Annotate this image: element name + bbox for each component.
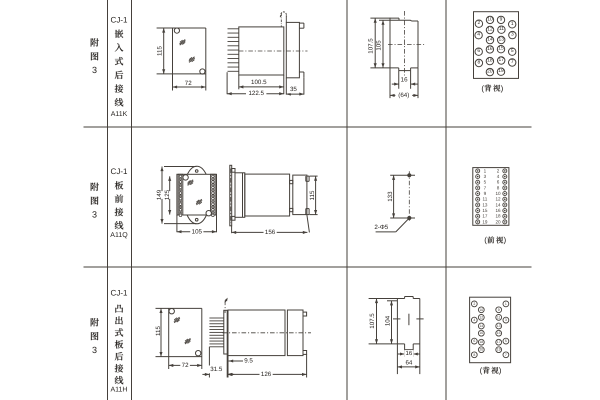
svg-text:1: 1	[505, 302, 507, 306]
svg-text:20: 20	[487, 69, 493, 75]
svg-text:15: 15	[498, 46, 504, 52]
svg-text:1: 1	[484, 168, 487, 173]
svg-text:18: 18	[487, 58, 493, 64]
svg-text:156: 156	[265, 229, 276, 236]
svg-text:16: 16	[401, 77, 408, 84]
svg-text:19: 19	[498, 68, 504, 74]
svg-text:5: 5	[484, 180, 487, 185]
svg-text:8: 8	[478, 60, 481, 66]
svg-text:9: 9	[498, 308, 500, 312]
svg-text:(64): (64)	[398, 92, 409, 99]
svg-text:2: 2	[478, 20, 481, 26]
svg-text:15: 15	[497, 331, 501, 335]
svg-text:8: 8	[473, 353, 475, 357]
svg-text:6: 6	[477, 48, 480, 54]
svg-text:12: 12	[487, 27, 493, 33]
svg-text:7: 7	[511, 59, 514, 65]
svg-text:72: 72	[182, 362, 189, 369]
svg-text:1: 1	[511, 21, 514, 27]
svg-text:11: 11	[497, 315, 501, 319]
svg-text:31.5: 31.5	[210, 366, 223, 373]
svg-text:104: 104	[384, 315, 391, 326]
svg-text:16: 16	[495, 208, 501, 213]
svg-text:20: 20	[479, 348, 483, 352]
svg-text:16: 16	[479, 331, 483, 335]
svg-text:19: 19	[482, 219, 488, 224]
svg-text:35: 35	[290, 86, 297, 93]
svg-text:3: 3	[92, 65, 97, 75]
svg-text:115: 115	[155, 326, 162, 336]
svg-text:72: 72	[185, 80, 192, 87]
svg-text:100.5: 100.5	[251, 79, 267, 86]
svg-text:): )	[499, 366, 502, 375]
svg-text:18: 18	[495, 214, 501, 219]
svg-text:17: 17	[482, 214, 488, 219]
svg-text:2: 2	[497, 168, 500, 173]
svg-text:105: 105	[376, 40, 383, 51]
svg-text:133: 133	[387, 191, 394, 202]
svg-text:3: 3	[511, 32, 514, 38]
svg-text:10: 10	[487, 16, 493, 22]
svg-text:5: 5	[511, 48, 514, 54]
svg-text:11: 11	[499, 26, 504, 32]
svg-text:4: 4	[473, 318, 475, 322]
svg-text:): )	[501, 84, 504, 93]
svg-text:CJ-1: CJ-1	[111, 16, 128, 25]
svg-text:19: 19	[497, 348, 501, 352]
svg-text:9: 9	[500, 16, 503, 22]
svg-text:CJ-1: CJ-1	[111, 167, 128, 176]
svg-text:115: 115	[157, 46, 164, 56]
svg-text:13: 13	[482, 202, 488, 207]
svg-text:107.5: 107.5	[369, 313, 376, 329]
svg-text:): )	[503, 236, 506, 245]
svg-text:115: 115	[309, 190, 316, 200]
svg-text:16: 16	[406, 350, 413, 357]
svg-text:7: 7	[505, 353, 507, 357]
svg-text:A11Q: A11Q	[110, 232, 128, 239]
svg-text:(: (	[484, 236, 487, 245]
svg-text:9.5: 9.5	[244, 358, 253, 365]
svg-text:6: 6	[473, 339, 475, 343]
svg-text:7: 7	[484, 185, 487, 190]
svg-text:2: 2	[473, 302, 475, 306]
svg-text:3: 3	[484, 174, 487, 179]
svg-text:105: 105	[192, 228, 203, 235]
svg-text:11: 11	[483, 197, 488, 202]
svg-text:10: 10	[479, 308, 483, 312]
svg-text:12: 12	[495, 197, 501, 202]
svg-text:17: 17	[498, 57, 504, 63]
svg-text:107.5: 107.5	[367, 38, 374, 54]
svg-text:5: 5	[505, 339, 507, 343]
svg-text:13: 13	[497, 324, 501, 328]
svg-text:13: 13	[498, 37, 504, 43]
svg-text:4: 4	[497, 174, 500, 179]
svg-text:17: 17	[497, 340, 501, 344]
svg-text:2-Φ5: 2-Φ5	[374, 224, 388, 231]
svg-text:16: 16	[487, 46, 493, 52]
svg-text:122.5: 122.5	[248, 90, 264, 97]
svg-text:A11H: A11H	[111, 386, 128, 393]
svg-text:6: 6	[497, 180, 500, 185]
svg-text:3: 3	[92, 345, 97, 355]
svg-text:(: (	[481, 84, 484, 93]
svg-text:126: 126	[261, 371, 272, 378]
svg-text:15: 15	[482, 208, 488, 213]
svg-text:(: (	[480, 366, 483, 375]
svg-text:18: 18	[479, 340, 483, 344]
svg-text:4: 4	[477, 32, 480, 38]
svg-text:CJ-1: CJ-1	[111, 288, 128, 297]
svg-text:14: 14	[479, 324, 483, 328]
svg-text:3: 3	[505, 318, 507, 322]
svg-text:125: 125	[164, 189, 171, 200]
svg-text:12: 12	[479, 315, 483, 319]
svg-text:A11K: A11K	[111, 111, 128, 118]
svg-text:14: 14	[495, 202, 501, 207]
svg-text:14: 14	[487, 37, 493, 43]
svg-text:10: 10	[495, 191, 501, 196]
svg-text:64: 64	[405, 359, 412, 366]
svg-text:20: 20	[495, 219, 501, 224]
svg-text:8: 8	[497, 185, 500, 190]
svg-text:9: 9	[484, 191, 487, 196]
svg-text:3: 3	[92, 210, 97, 220]
